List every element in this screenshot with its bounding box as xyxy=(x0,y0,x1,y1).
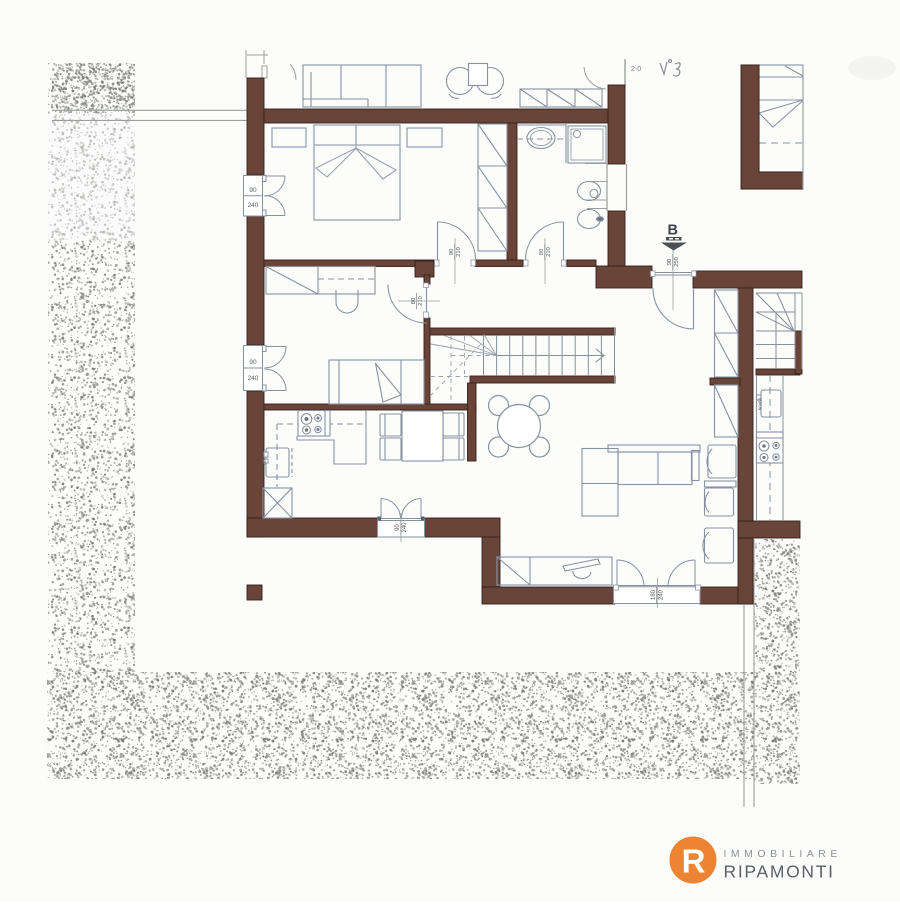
svg-text:240: 240 xyxy=(248,375,259,382)
svg-text:240: 240 xyxy=(659,589,665,600)
svg-text:B: B xyxy=(668,223,678,239)
svg-text:180: 180 xyxy=(651,589,657,600)
svg-text:RIPAMONTI: RIPAMONTI xyxy=(724,862,835,882)
svg-text:90: 90 xyxy=(395,524,401,531)
svg-text:240: 240 xyxy=(248,202,259,209)
svg-text:210: 210 xyxy=(456,247,462,257)
svg-text:IMMOBILIARE: IMMOBILIARE xyxy=(724,848,842,860)
svg-text:80: 80 xyxy=(539,249,545,255)
svg-text:90: 90 xyxy=(667,259,673,265)
svg-text:90: 90 xyxy=(249,359,257,366)
svg-text:2-0: 2-0 xyxy=(631,66,641,73)
svg-text:R: R xyxy=(682,843,706,880)
svg-text:60x60: 60x60 xyxy=(758,397,763,410)
svg-text:210: 210 xyxy=(546,247,552,257)
svg-text:90: 90 xyxy=(449,249,455,255)
svg-text:240: 240 xyxy=(402,522,408,533)
svg-text:250: 250 xyxy=(674,257,680,267)
svg-text:90: 90 xyxy=(249,187,257,194)
svg-text:60: 60 xyxy=(262,459,268,465)
